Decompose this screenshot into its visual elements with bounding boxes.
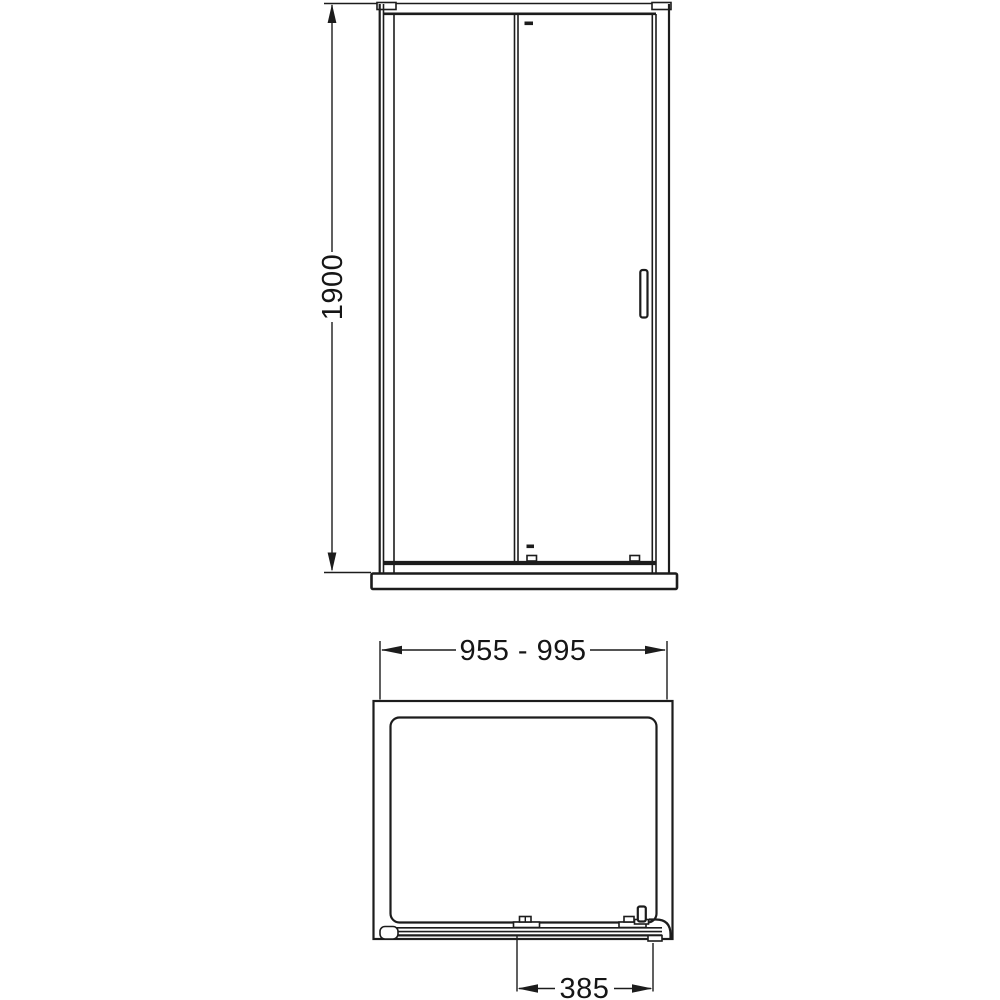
shower-tray-front xyxy=(372,574,678,590)
arrow-up-icon xyxy=(328,4,337,23)
handle-bar-plan xyxy=(638,907,646,922)
height-dimension-label: 1900 xyxy=(317,254,349,321)
bottom-roller-mark xyxy=(527,545,535,549)
technical-drawing-canvas: 1900 xyxy=(0,0,1000,1000)
arrow-down-icon xyxy=(328,553,337,572)
front-elevation-view: 1900 xyxy=(317,3,677,590)
arrow-left-icon xyxy=(381,646,402,654)
width-dimension: 955 - 995 xyxy=(380,635,667,700)
top-roller-mark xyxy=(525,22,534,26)
sliding-panel-overlap-edge xyxy=(515,15,519,561)
door-frame xyxy=(377,3,671,574)
shower-door-dimension-drawing: 1900 xyxy=(0,0,1000,1000)
bottom-roller-guide-right xyxy=(630,556,640,562)
plan-view: 955 - 995 xyxy=(374,635,673,1000)
height-dimension: 1900 xyxy=(317,4,378,573)
bottom-track xyxy=(384,556,656,564)
track-end-cap-left xyxy=(380,927,398,940)
carrier-block-right xyxy=(624,917,634,923)
door-handle xyxy=(640,270,647,318)
arrow-left-icon xyxy=(518,984,539,992)
bottom-roller-guide-left xyxy=(527,556,537,562)
shower-tray-plan xyxy=(391,718,657,923)
carrier-bar-left xyxy=(514,922,540,928)
arrow-right-icon xyxy=(645,646,666,654)
arrow-right-icon xyxy=(632,984,653,992)
width-dimension-label: 955 - 995 xyxy=(459,635,586,667)
corner-profile-foot xyxy=(648,936,662,942)
door-opening-dimension: 385 xyxy=(517,936,653,1000)
door-opening-dimension-label: 385 xyxy=(560,973,610,1000)
